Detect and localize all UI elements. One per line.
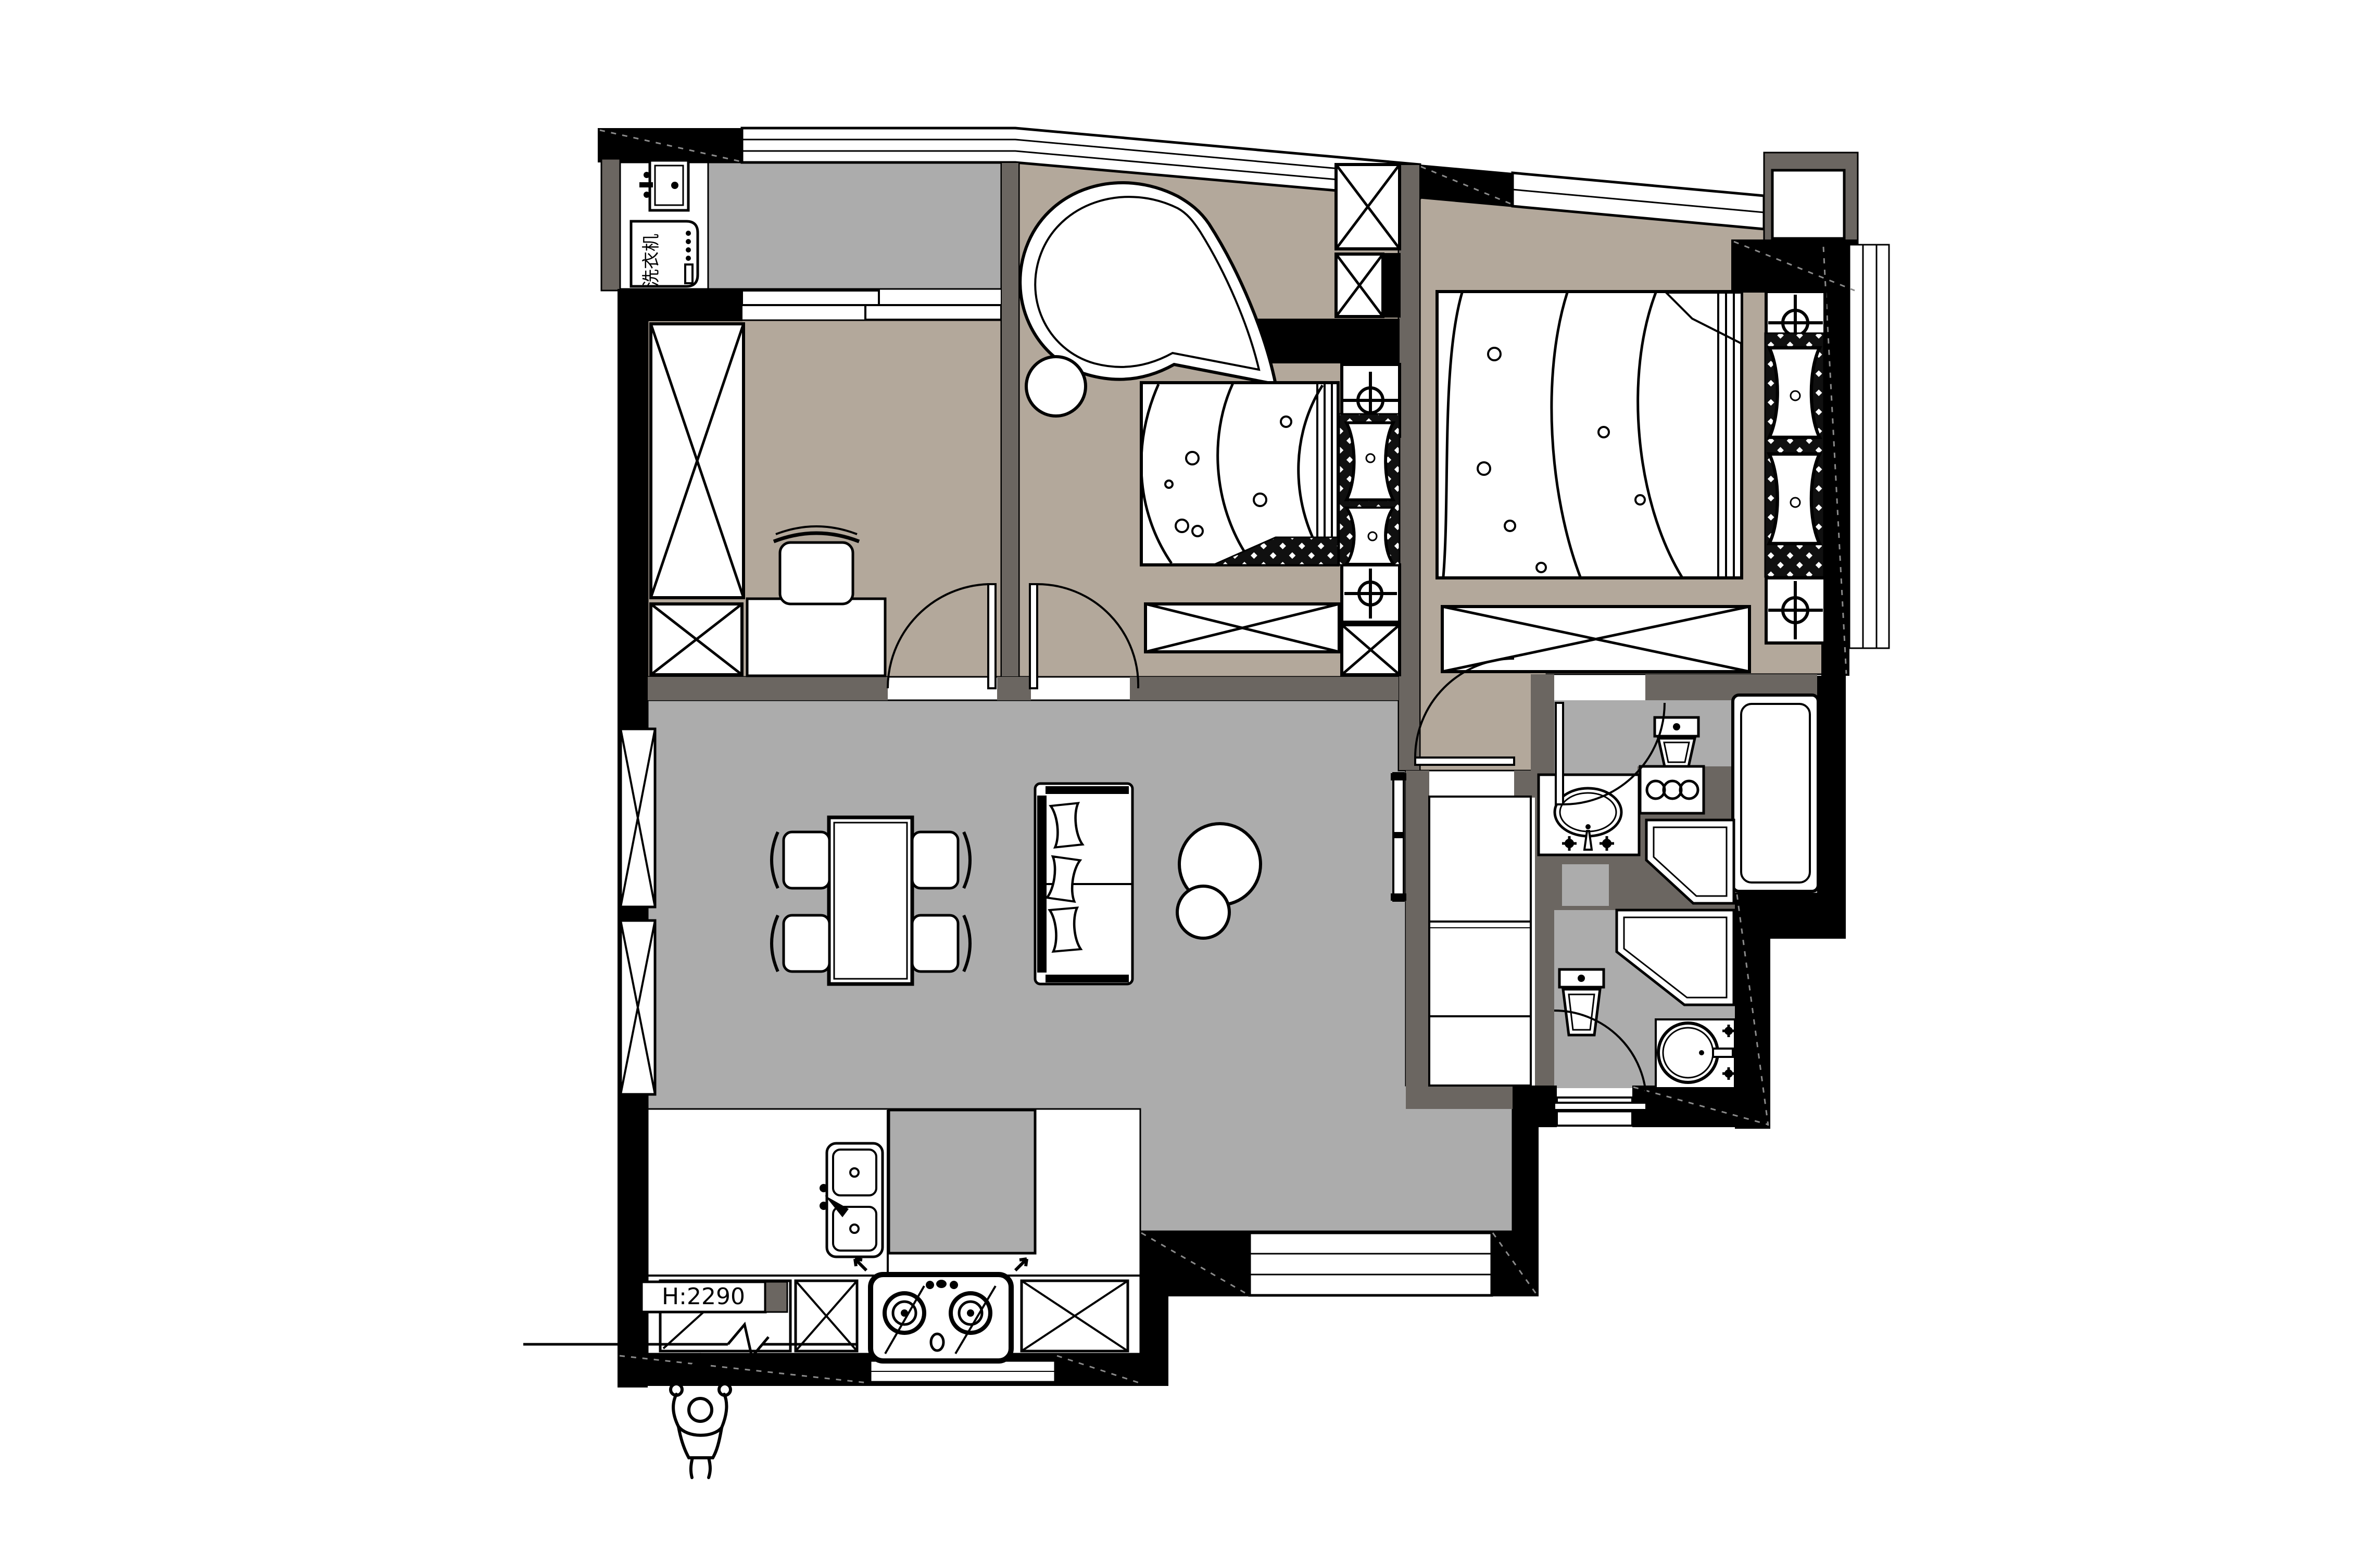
shaft bbox=[1772, 170, 1844, 238]
ottoman bbox=[1026, 357, 1086, 416]
sofa bbox=[1035, 784, 1132, 984]
kitchen-cabinet-x2 bbox=[1022, 1281, 1128, 1351]
bedroom3 bbox=[1437, 292, 1824, 578]
height-label: H:2290 bbox=[662, 1283, 745, 1310]
bed3 bbox=[1437, 292, 1824, 578]
balcony-floor-gray bbox=[708, 162, 1001, 289]
kitchen-island bbox=[889, 1110, 1035, 1253]
washing-machine: 洗衣机 bbox=[631, 221, 698, 287]
sliding-door[interactable] bbox=[742, 291, 1001, 320]
vanity-sink bbox=[1539, 775, 1639, 855]
washing-machine-label: 洗衣机 bbox=[641, 234, 662, 287]
window-strip-right bbox=[1849, 245, 1889, 648]
dining-table bbox=[829, 817, 912, 984]
height-label-box: H:2290 bbox=[641, 1282, 787, 1312]
closet bbox=[1429, 797, 1531, 1086]
bathtub bbox=[1733, 695, 1818, 891]
desk bbox=[747, 599, 885, 676]
floor-plan-canvas: 洗衣机 bbox=[0, 0, 2380, 1564]
stove bbox=[855, 1259, 1027, 1361]
wardrobe-bedroom2 bbox=[1145, 604, 1339, 652]
tv bbox=[1391, 773, 1406, 901]
window-living bbox=[1250, 1233, 1492, 1295]
round-basin bbox=[1656, 1019, 1735, 1088]
cabinet-three-knobs bbox=[1640, 766, 1704, 813]
coffee-table-small bbox=[1177, 886, 1229, 938]
person-figure bbox=[671, 1384, 731, 1478]
kitchen-cabinet-x1 bbox=[796, 1281, 857, 1351]
wardrobe-bedroom1 bbox=[651, 324, 744, 675]
kitchen-sink bbox=[820, 1143, 883, 1257]
